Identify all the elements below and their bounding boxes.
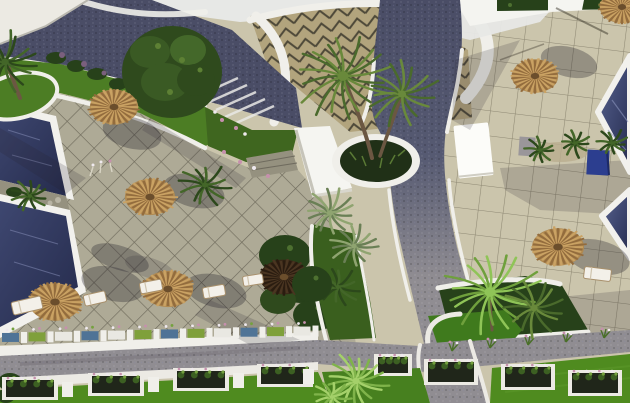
- mini-flower: [277, 322, 280, 325]
- sprig-flower: [601, 328, 604, 331]
- planter-box: [177, 371, 225, 388]
- planter-shrub-tip: [397, 356, 400, 359]
- palm-center: [610, 141, 614, 145]
- planter-flower: [204, 368, 207, 371]
- sun-lounger: [583, 266, 611, 281]
- planter-shrub-tip: [589, 372, 592, 375]
- planter-shrub-tip: [547, 366, 550, 369]
- sprig-flower: [525, 335, 528, 338]
- planter-box: [261, 367, 309, 384]
- sprig-flower: [494, 339, 497, 342]
- lounger-pad: [583, 266, 611, 281]
- palm-center: [398, 90, 406, 97]
- mini-curb-post: [21, 332, 27, 343]
- palm-center: [28, 194, 32, 198]
- planter-shrub-tip: [292, 366, 295, 369]
- mini-curb-post: [127, 330, 133, 341]
- aerial-resort-render: [0, 0, 630, 403]
- palm-frond: [562, 141, 573, 142]
- planter-flower: [191, 368, 194, 371]
- planter-flower: [218, 368, 221, 371]
- palm-center: [573, 141, 577, 145]
- planter-flower: [275, 364, 278, 367]
- planter-shrub-tip: [470, 361, 473, 364]
- planter-flower: [393, 354, 396, 357]
- scene-canvas: [0, 0, 630, 403]
- mini-flower: [138, 326, 141, 329]
- planter-flower: [573, 370, 576, 373]
- mini-planter-box: [267, 327, 284, 336]
- planter-flower: [7, 377, 10, 380]
- white-canopy: [453, 122, 493, 178]
- planter-flower: [401, 354, 404, 357]
- palm-center: [327, 210, 333, 215]
- planter-shrub-tip: [432, 361, 435, 364]
- planter-flower: [598, 370, 601, 373]
- planter-shrub-tip: [208, 370, 211, 373]
- planter-shrub-tip: [221, 370, 224, 373]
- curb-post: [233, 373, 244, 388]
- mini-curb-post: [313, 326, 319, 337]
- mini-flower: [303, 321, 306, 324]
- planter-flower: [441, 359, 444, 362]
- mini-flower: [12, 328, 15, 331]
- mini-flower: [244, 323, 247, 326]
- planter-shrub-tip: [404, 356, 407, 359]
- mini-planter-box: [108, 331, 125, 340]
- planter-flower: [454, 359, 457, 362]
- mini-curb-post: [48, 331, 54, 342]
- planter-flower: [106, 373, 109, 376]
- planter-shrub-tip: [279, 366, 282, 369]
- planter-shrub-tip: [382, 356, 385, 359]
- mini-curb-post: [101, 330, 107, 341]
- mini-flower: [59, 327, 62, 330]
- planter-shrub-tip: [24, 379, 27, 382]
- mini-flower: [250, 322, 253, 325]
- palm-center: [330, 395, 334, 399]
- curb-post: [62, 382, 73, 397]
- planter-flower: [93, 373, 96, 376]
- palm-center: [202, 182, 208, 187]
- mini-flower: [171, 324, 174, 327]
- mini-flower: [191, 324, 194, 327]
- palm-center: [1, 59, 9, 66]
- planter-flower: [47, 377, 50, 380]
- planter-flower: [585, 370, 588, 373]
- planter-flower: [288, 364, 291, 367]
- mini-flower: [165, 325, 168, 328]
- hedge-overlay: [292, 266, 332, 302]
- mini-flower: [91, 326, 94, 329]
- palm-center: [351, 244, 356, 249]
- sprig-flower: [449, 341, 452, 344]
- mini-planter-box: [2, 333, 19, 342]
- mini-curb-post: [207, 328, 213, 339]
- planter-shrub-tip: [10, 379, 13, 382]
- mini-flower: [38, 327, 41, 330]
- palm-center: [484, 287, 495, 297]
- palm-center: [337, 71, 348, 81]
- palm-center: [530, 305, 537, 311]
- mini-flower: [224, 323, 227, 326]
- planter-shrub-tip: [458, 361, 461, 364]
- planter-flower: [518, 364, 521, 367]
- mini-planter-box: [188, 329, 205, 338]
- sprig-flower: [456, 342, 459, 345]
- planter-shrub-tip: [123, 375, 126, 378]
- palm-frond: [205, 168, 206, 183]
- palm-frond: [338, 271, 339, 286]
- planter-box: [92, 376, 140, 393]
- planter-flower: [531, 364, 534, 367]
- planter-shrub-tip: [265, 366, 268, 369]
- mini-planter-box: [82, 331, 99, 340]
- mini-planter-box: [241, 328, 258, 337]
- planter-flower: [429, 359, 432, 362]
- curb-post: [303, 369, 314, 384]
- mini-flower: [118, 325, 121, 328]
- planter-shrub-tip: [50, 379, 53, 382]
- planter-flower: [544, 364, 547, 367]
- planter-shrub-tip: [110, 375, 113, 378]
- mini-flower: [271, 323, 274, 326]
- palm-frond: [577, 143, 588, 144]
- planter-flower: [178, 368, 181, 371]
- mini-planter-box: [214, 328, 231, 337]
- mini-flower: [144, 325, 147, 328]
- palm-center: [538, 148, 542, 152]
- planter-shrub-tip: [509, 366, 512, 369]
- mini-planter-box: [161, 329, 178, 338]
- palm-frond: [30, 181, 31, 194]
- curb-post: [148, 377, 159, 392]
- mini-flower: [297, 322, 300, 325]
- planter-flower: [133, 373, 136, 376]
- planter-shrub-tip: [181, 370, 184, 373]
- planter-flower: [119, 373, 122, 376]
- planter-flower: [506, 364, 509, 367]
- mini-flower: [197, 323, 200, 326]
- sprig-flower: [570, 333, 573, 336]
- planter-flower: [33, 377, 36, 380]
- planter-shrub-tip: [522, 366, 525, 369]
- planter-shrub-tip: [576, 372, 579, 375]
- mini-flower: [65, 326, 68, 329]
- mini-flower: [112, 326, 115, 329]
- palm-frond: [614, 143, 624, 144]
- sprig-flower: [563, 332, 566, 335]
- planter-shrub-tip: [614, 372, 617, 375]
- mini-flower: [32, 328, 35, 331]
- planter-flower: [467, 359, 470, 362]
- mini-planter-box: [29, 332, 46, 341]
- planter-shrub-tip: [602, 372, 605, 375]
- mini-curb-post: [233, 327, 239, 338]
- planter-shrub-tip: [136, 375, 139, 378]
- mini-flower: [85, 327, 88, 330]
- planter-shrub-tip: [535, 366, 538, 369]
- sprig-flower: [487, 338, 490, 341]
- planter-flower: [302, 364, 305, 367]
- mini-curb-post: [154, 329, 160, 340]
- mini-flower: [6, 329, 9, 332]
- palm-center: [336, 285, 341, 289]
- mini-curb-post: [74, 331, 80, 342]
- sprig-flower: [608, 329, 611, 332]
- planter-shrub-tip: [37, 379, 40, 382]
- planter-flower: [379, 354, 382, 357]
- mini-planter-box: [294, 327, 311, 336]
- mini-curb-post: [286, 326, 292, 337]
- mini-planter-box: [135, 330, 152, 339]
- planter-flower: [386, 354, 389, 357]
- mini-curb-post: [180, 328, 186, 339]
- mini-curb-post: [260, 327, 266, 338]
- mini-planter-box: [55, 332, 72, 341]
- planter-flower: [20, 377, 23, 380]
- planter-box: [6, 380, 54, 397]
- planter-shrub-tip: [445, 361, 448, 364]
- planter-shrub-tip: [96, 375, 99, 378]
- mini-flower: [218, 324, 221, 327]
- palm-center: [352, 378, 359, 384]
- planter-shrub-tip: [390, 356, 393, 359]
- planter-shrub-tip: [195, 370, 198, 373]
- planter-flower: [262, 364, 265, 367]
- planter-flower: [611, 370, 614, 373]
